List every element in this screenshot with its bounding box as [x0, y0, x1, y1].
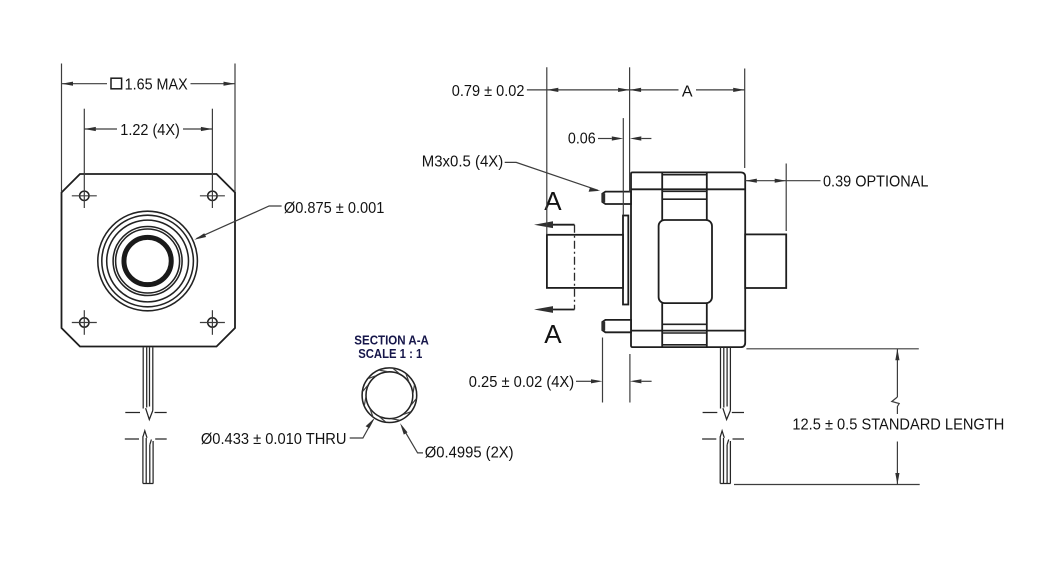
svg-text:Ø0.875 ± 0.001: Ø0.875 ± 0.001	[284, 200, 385, 217]
svg-text:Ø0.433 ± 0.010 THRU: Ø0.433 ± 0.010 THRU	[201, 431, 347, 448]
svg-text:M3x0.5 (4X): M3x0.5 (4X)	[422, 154, 503, 171]
svg-text:SECTION A-A: SECTION A-A	[354, 333, 429, 347]
svg-text:0.79 ± 0.02: 0.79 ± 0.02	[452, 83, 525, 100]
svg-text:A: A	[544, 319, 562, 349]
svg-text:A: A	[682, 83, 693, 100]
svg-text:1.65 MAX: 1.65 MAX	[125, 76, 188, 93]
svg-text:1.22 (4X): 1.22 (4X)	[120, 122, 180, 139]
svg-text:SCALE 1 : 1: SCALE 1 : 1	[358, 347, 422, 361]
svg-text:0.25 ± 0.02 (4X): 0.25 ± 0.02 (4X)	[469, 374, 574, 391]
svg-text:Ø0.4995 (2X): Ø0.4995 (2X)	[425, 445, 514, 462]
svg-text:12.5 ± 0.5 STANDARD LENGTH: 12.5 ± 0.5 STANDARD LENGTH	[792, 417, 1004, 434]
svg-text:0.39 OPTIONAL: 0.39 OPTIONAL	[823, 174, 928, 191]
svg-text:0.06: 0.06	[568, 131, 596, 148]
